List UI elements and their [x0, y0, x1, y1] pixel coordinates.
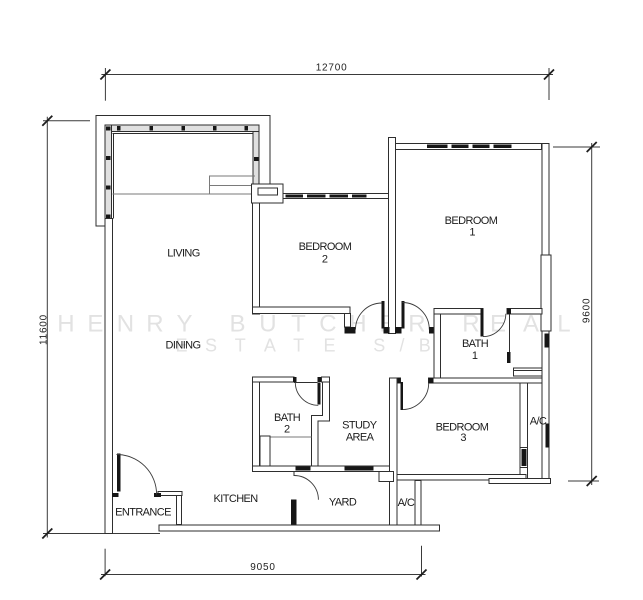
svg-text:LIVING: LIVING — [167, 247, 200, 259]
svg-text:BATH: BATH — [462, 338, 489, 350]
svg-text:A/C: A/C — [530, 415, 547, 427]
svg-text:9050: 9050 — [250, 562, 275, 573]
svg-text:BEDROOM: BEDROOM — [299, 241, 352, 253]
svg-text:1: 1 — [472, 350, 478, 362]
svg-text:BATH: BATH — [274, 412, 301, 424]
svg-text:AREA: AREA — [346, 432, 375, 444]
svg-text:12700: 12700 — [316, 63, 348, 74]
svg-text:2: 2 — [284, 423, 290, 435]
svg-text:A/C: A/C — [398, 497, 415, 509]
svg-text:9600: 9600 — [582, 298, 593, 323]
svg-text:BEDROOM: BEDROOM — [445, 215, 498, 227]
svg-text:KITCHEN: KITCHEN — [214, 493, 259, 505]
svg-text:1: 1 — [469, 226, 475, 238]
svg-text:YARD: YARD — [329, 497, 357, 509]
svg-text:11600: 11600 — [39, 314, 50, 345]
svg-text:3: 3 — [460, 432, 466, 444]
svg-text:DINING: DINING — [166, 339, 201, 351]
svg-text:2: 2 — [322, 253, 328, 265]
svg-text:STUDY: STUDY — [342, 420, 378, 432]
svg-text:ENTRANCE: ENTRANCE — [115, 507, 171, 519]
